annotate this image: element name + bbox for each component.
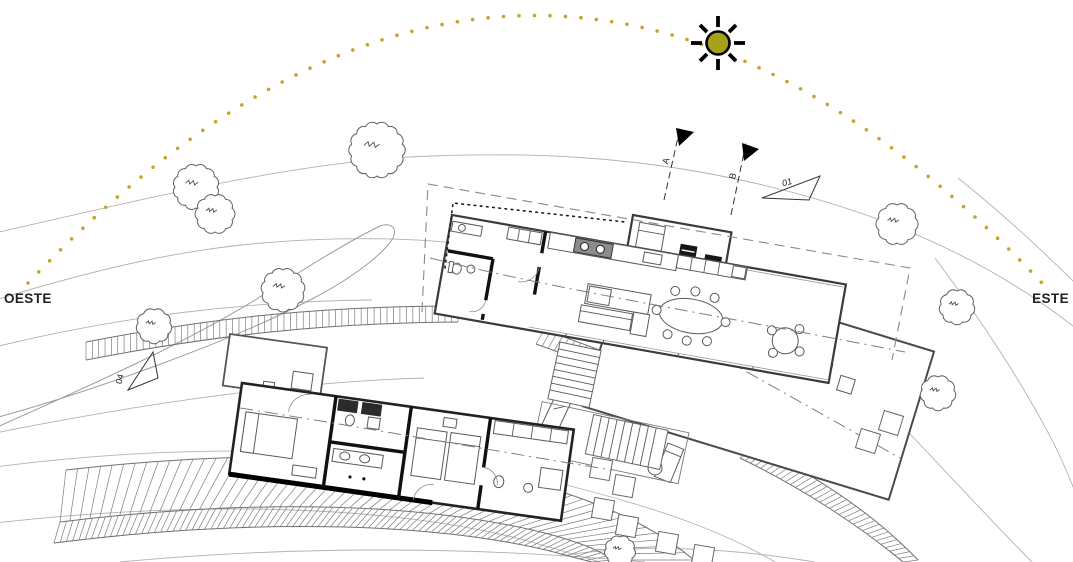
- tree-icon: [136, 309, 171, 344]
- view-callout-01: 01: [762, 176, 820, 200]
- tree-icon: [920, 376, 955, 411]
- tree-icon: [939, 290, 974, 325]
- building-lower-wing: [229, 383, 574, 521]
- tree-icon: [195, 195, 235, 234]
- view-04-label: 04: [114, 373, 126, 385]
- architectural-site-plan: A B 01 04 OESTE ESTE: [0, 0, 1073, 562]
- east-label: ESTE: [1032, 291, 1069, 306]
- site-plan-canvas: A B 01 04 OESTE ESTE: [0, 0, 1073, 562]
- section-marker-b: B: [727, 143, 759, 215]
- sun-icon: [691, 16, 745, 70]
- tree-icon: [349, 122, 405, 177]
- west-label: OESTE: [4, 291, 52, 306]
- section-b-label: B: [727, 172, 738, 181]
- section-marker-a: A: [660, 128, 694, 200]
- section-a-label: A: [660, 157, 671, 166]
- tree-icon: [876, 204, 918, 245]
